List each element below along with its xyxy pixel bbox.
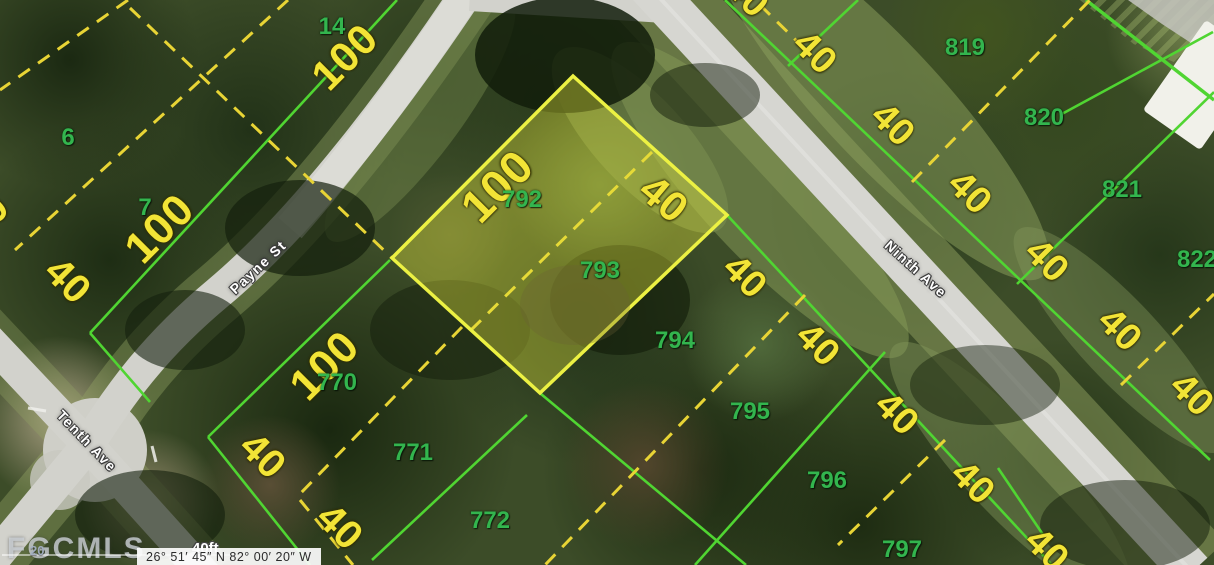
parcel-id-label-771: 771 <box>393 441 433 465</box>
parcel-id-label-822: 822 <box>1177 248 1214 272</box>
parcel-id-label-770: 770 <box>317 371 357 395</box>
parcel-id-label-14: 14 <box>319 15 346 39</box>
parcel-id-label-797: 797 <box>882 538 922 562</box>
building <box>1143 20 1214 150</box>
coordinates-readout: 26° 51′ 45″ N 82° 00′ 20″ W <box>137 548 321 565</box>
parcel-id-label-795: 795 <box>730 400 770 424</box>
parcel-id-label-6: 6 <box>61 126 74 150</box>
parcel-id-label-792: 792 <box>502 188 542 212</box>
parcel-id-label-819: 819 <box>945 36 985 60</box>
map-viewport[interactable]: 1001004040100401004040404040404040404040… <box>0 0 1214 565</box>
corner-structures <box>1128 0 1214 150</box>
stop-bar-marking <box>152 446 156 462</box>
parcel-id-label-7: 7 <box>138 196 151 220</box>
parcel-id-label-793: 793 <box>580 259 620 283</box>
parcel-id-label-794: 794 <box>655 329 695 353</box>
parcel-id-label-796: 796 <box>807 469 847 493</box>
parcel-id-label-772: 772 <box>470 509 510 533</box>
parcel-id-label-820: 820 <box>1024 106 1064 130</box>
scale-label-20: 20 <box>30 544 44 557</box>
mls-watermark: FGCMLS <box>7 532 146 565</box>
parcel-id-label-821: 821 <box>1102 178 1142 202</box>
